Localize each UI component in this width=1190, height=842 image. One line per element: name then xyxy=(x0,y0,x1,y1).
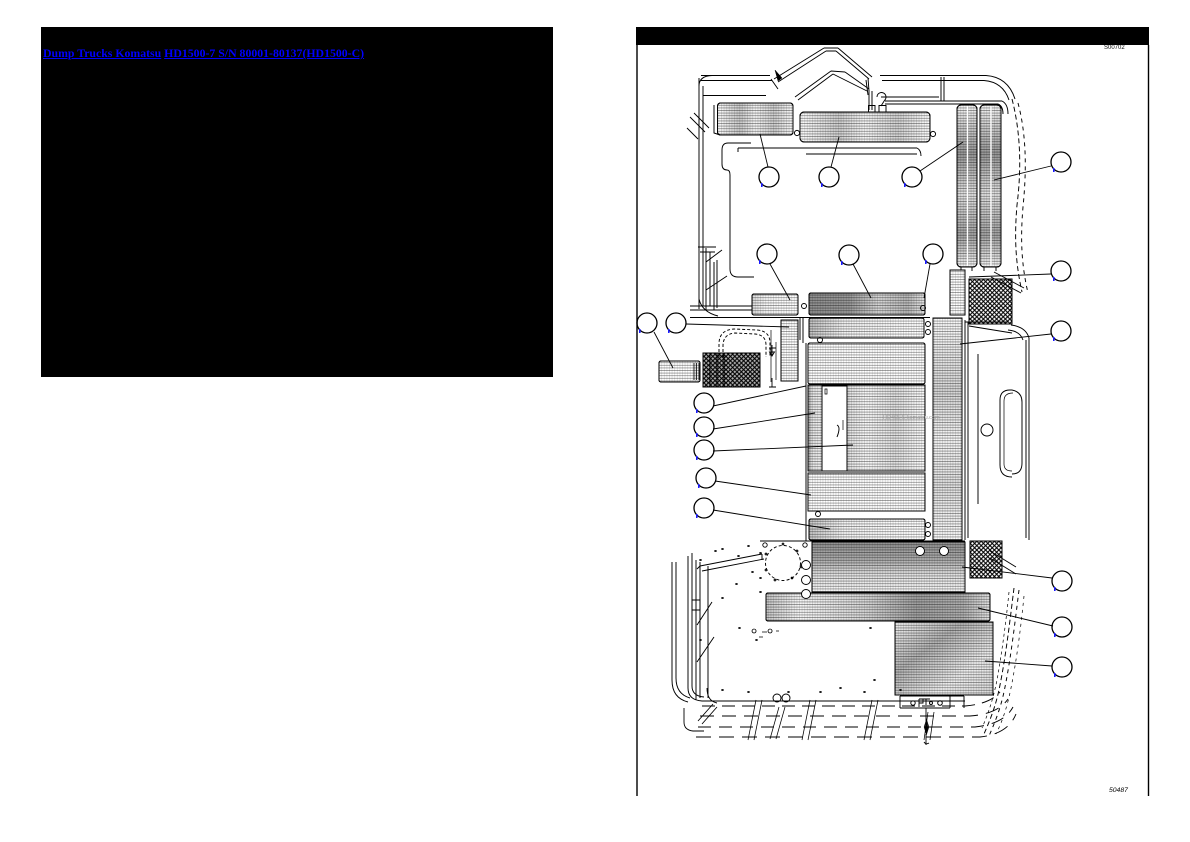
svg-text:S00702: S00702 xyxy=(1104,45,1125,51)
svg-text:HD465-5-komatsu.com: HD465-5-komatsu.com xyxy=(883,415,940,421)
svg-text:50487: 50487 xyxy=(1109,787,1128,794)
